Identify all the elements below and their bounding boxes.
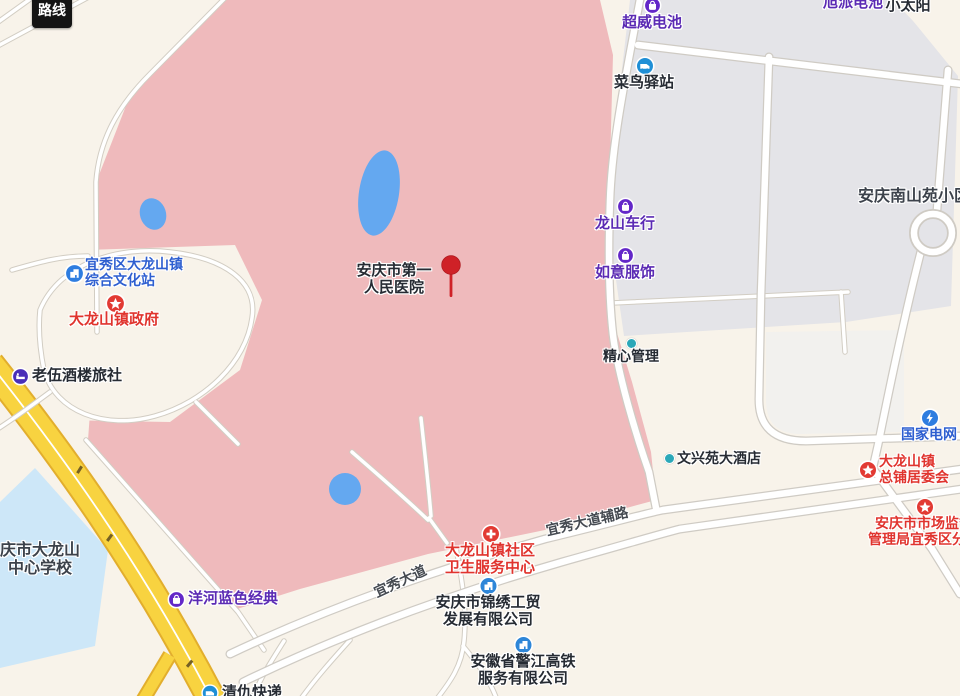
poi-school-label[interactable]: 庆市大龙山 中心学校 <box>0 542 80 578</box>
pond-small-lower <box>329 473 361 505</box>
delivery-van-icon <box>634 56 653 75</box>
shop-icon <box>167 590 186 609</box>
poi-jinxiu-trade[interactable]: 安庆市锦绣工贸 发展有限公司 <box>435 576 540 629</box>
route-button[interactable]: 路线 <box>32 0 72 28</box>
poi-xiaotaiyang[interactable]: 小太阳 <box>885 0 930 15</box>
poi-cainiao-station[interactable]: 菜鸟驿站 <box>614 56 674 92</box>
star-icon <box>858 460 877 479</box>
poi-town-government[interactable]: 大龙山镇政府 <box>69 293 159 329</box>
poi-state-grid[interactable]: 国家电网 <box>901 408 957 443</box>
medical-cross-icon <box>480 524 499 543</box>
hotel-icon <box>11 367 30 386</box>
poi-culture-station[interactable]: 宜秀区大龙山镇 综合文化站 <box>64 257 183 288</box>
building-icon <box>64 263 83 282</box>
poi-dot-icon <box>664 453 675 464</box>
map-canvas[interactable]: 路线 超威电池 旭派电池 小太阳 菜鸟驿站 安庆南山苑小区 龙山车行 如意服饰 … <box>0 0 960 696</box>
poi-xupai-battery[interactable]: 旭派电池 <box>823 0 883 12</box>
shop-icon <box>642 0 661 15</box>
hospital-pin-marker[interactable] <box>441 255 461 304</box>
poi-chaowei-battery[interactable]: 超威电池 <box>622 0 682 32</box>
star-icon <box>104 293 123 312</box>
poi-ruyi-clothing[interactable]: 如意服饰 <box>595 246 655 282</box>
company-icon <box>513 635 532 654</box>
shop-icon <box>615 197 634 216</box>
poi-jingxin-management[interactable]: 精心管理 <box>603 338 659 365</box>
electric-grid-icon <box>920 408 939 427</box>
poi-longshan-bike-shop[interactable]: 龙山车行 <box>595 197 655 233</box>
poi-gaotie-service[interactable]: 安徽省警江高铁 服务有限公司 <box>470 635 575 688</box>
poi-nanshanyuan-compound[interactable]: 安庆南山苑小区 <box>858 188 960 206</box>
poi-wenxingyuan-hotel[interactable]: 文兴苑大酒店 <box>664 451 761 467</box>
poi-express-station[interactable]: 清仇快递 <box>201 684 282 696</box>
shop-icon <box>615 246 634 265</box>
poi-market-supervision[interactable]: 安庆市市场监督 管理局宜秀区分局 <box>868 497 960 547</box>
company-icon <box>478 576 497 595</box>
poi-zongpu-committee[interactable]: 大龙山镇 总铺居委会 <box>858 454 949 485</box>
poi-health-center[interactable]: 大龙山镇社区 卫生服务中心 <box>445 524 535 577</box>
express-icon <box>201 684 220 696</box>
poi-laowu-hotel[interactable]: 老伍酒楼旅社 <box>11 367 122 386</box>
star-icon <box>915 497 934 516</box>
poi-hospital-label[interactable]: 安庆市第一 人民医院 <box>356 263 431 297</box>
poi-yanghe-liquor[interactable]: 洋河蓝色经典 <box>167 590 278 609</box>
